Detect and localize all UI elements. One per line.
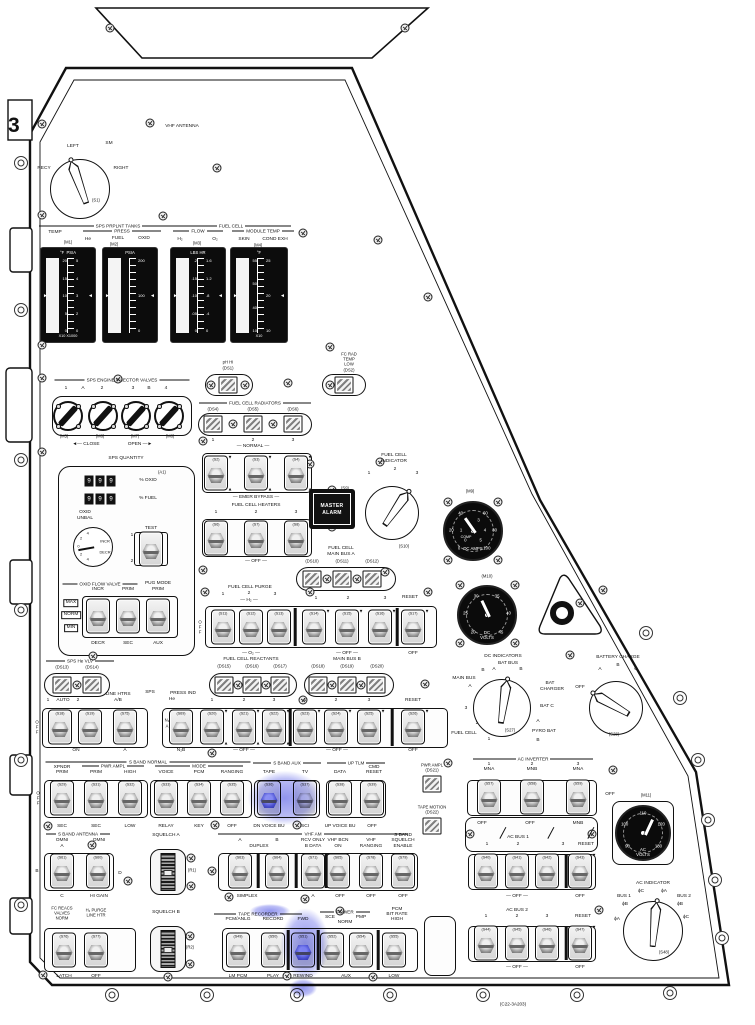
label-a: A [468, 684, 471, 690]
screw-fastener-icon [401, 24, 410, 33]
toggle-knob-icon[interactable] [230, 945, 247, 960]
label-ac-bus-2: AC BUS 2 [506, 908, 528, 914]
label-a: A [81, 386, 84, 392]
gauge-scale-title: PSIA [105, 250, 155, 257]
toggle-knob-icon[interactable] [386, 945, 403, 960]
toggle-switch-s39[interactable]: (S39) [360, 781, 384, 816]
switch-designator: (S76) [53, 934, 75, 938]
switch-designator: (S13) [268, 611, 290, 615]
gauge-number: 25 [463, 611, 468, 616]
switch-designator: (S38) [329, 782, 351, 786]
label-oxid: % OXID [139, 478, 156, 484]
toggle-knob-icon[interactable] [143, 544, 160, 559]
valve-screw-icon [56, 404, 61, 409]
toggle-knob-icon[interactable] [54, 866, 71, 881]
label-a: ϕA [614, 917, 620, 923]
injector-valve-indicator [121, 401, 151, 431]
toggle-knob-icon[interactable] [236, 722, 253, 737]
toggle-knob-icon[interactable] [509, 938, 526, 953]
toggle-switch-s47[interactable]: (S47) [568, 926, 592, 961]
injector-valve-indicator [53, 401, 83, 431]
mounting-hole-icon [14, 603, 28, 617]
switch-designator: (S60) [87, 855, 109, 859]
thumbwheel-serrations[interactable] [161, 930, 176, 968]
label-1: 1 [222, 592, 225, 598]
switch-designator: (S37) [294, 782, 316, 786]
toggle-knob-icon[interactable] [405, 722, 422, 737]
label-prim: PRIM [90, 770, 102, 776]
gauge-number: 4 [484, 527, 486, 532]
toggle-switch-s52[interactable]: (S52) [320, 933, 344, 968]
screw-fastener-icon [494, 498, 503, 507]
label-record: RECORD [263, 917, 284, 923]
gauge-left-ticks [121, 258, 129, 333]
master-alarm-button[interactable]: MASTERALARM [309, 489, 355, 529]
gauge-number: 1 [460, 527, 462, 532]
switch-designator: (S63) [229, 855, 251, 859]
label-play: PLAY [267, 974, 279, 980]
rotary-knob-icon[interactable] [622, 900, 685, 963]
gauge-number: 130 [655, 843, 662, 848]
talkback-indicator [204, 416, 223, 433]
toggle-switch-s76[interactable]: (S76) [52, 933, 76, 968]
gauge-scale-title: LBS HR [173, 250, 223, 257]
thumbwheel-serrations[interactable] [161, 853, 176, 891]
label-ds20: (DS20) [370, 665, 383, 670]
label-1: 1 [368, 471, 371, 477]
toggle-switch-s43[interactable]: (S43) [568, 854, 592, 889]
toggle-knob-icon[interactable] [271, 622, 288, 637]
toggle-knob-icon[interactable] [361, 722, 378, 737]
vhf-antenna-rotary[interactable] [50, 159, 110, 219]
label-d: D [118, 871, 121, 877]
label-b-data: B DATA [305, 844, 322, 850]
bracket-label: PWR AMPL [99, 764, 127, 769]
toggle-knob-icon[interactable] [122, 793, 139, 808]
toggle-knob-icon[interactable] [204, 722, 221, 737]
switch-designator: (S14) [303, 611, 325, 615]
switch-designator: (S23) [294, 711, 316, 715]
label-off: OFF [605, 792, 615, 798]
toggle-knob-icon[interactable] [332, 793, 349, 808]
toggle-knob-icon[interactable] [232, 866, 249, 881]
gauge-number: 20 [471, 629, 476, 634]
toggle-switch-s6[interactable]: (S6) [204, 521, 228, 556]
toggle-switch-s16[interactable]: (S16) [368, 610, 392, 645]
toggle-knob-icon[interactable] [478, 938, 495, 953]
toggle-knob-icon[interactable] [173, 722, 190, 737]
toggle-switch-s46[interactable]: (S46) [535, 926, 559, 961]
toggle-knob-icon[interactable] [324, 945, 341, 960]
label-fuel-cell-purge: FUEL CELL PURGE [228, 585, 272, 591]
toggle-knob-icon[interactable] [288, 533, 305, 548]
talkback-indicator [303, 571, 322, 588]
label-reset: RESET [366, 770, 382, 776]
toggle-switch-s17[interactable]: (S17) [401, 610, 425, 645]
label-bat: BAT [546, 681, 555, 687]
label-3: 3 [132, 386, 135, 392]
toggle-switch-s78[interactable]: (S78) [359, 854, 383, 889]
toggle-switch-s63[interactable]: (S63) [228, 854, 252, 889]
toggle-knob-icon[interactable] [306, 622, 323, 637]
toggle-switch-s60[interactable]: (S60) [86, 854, 110, 889]
label-c: ϕC [638, 889, 644, 895]
label-rewind: REWIND [293, 974, 312, 980]
toggle-knob-icon[interactable] [90, 611, 107, 626]
toggle-knob-icon[interactable] [208, 533, 225, 548]
label-mnb: MNB [527, 767, 538, 773]
toggle-knob-icon[interactable] [191, 793, 208, 808]
label-dn-voice-bu: DN VOICE BU [253, 824, 284, 830]
toggle-knob-icon[interactable] [572, 866, 589, 881]
screw-fastener-icon [456, 581, 465, 590]
label-a: A [238, 838, 241, 844]
screw-fastener-icon [201, 588, 210, 597]
switch-designator: (S32) [119, 782, 141, 786]
toggle-knob-icon[interactable] [90, 866, 107, 881]
label-s-band-aux: S BAND AUX [253, 761, 321, 766]
toggle-switch-s54[interactable]: (S54) [349, 933, 373, 968]
divider-bar [565, 854, 568, 888]
switch-designator: (S20) [201, 711, 223, 715]
toggle-switch-s18[interactable]: (S18) [48, 710, 72, 745]
toggle-knob-icon[interactable] [224, 793, 241, 808]
toggle-switch-s64[interactable]: (S64) [265, 854, 289, 889]
label-1: 1 [211, 698, 214, 704]
divider-bar [287, 930, 290, 970]
gauge-number: 0 [458, 545, 460, 550]
toggle-switch-s42[interactable]: (S42) [535, 854, 559, 889]
gauge-number: 35 [495, 593, 500, 598]
toggle-switch-s71[interactable]: (S71) [301, 854, 325, 889]
toggle-switch-119[interactable] [146, 599, 170, 634]
knob-face [381, 490, 412, 527]
toggle-switch-s34[interactable]: (S34) [187, 781, 211, 816]
toggle-switch-s58[interactable]: (S58) [520, 780, 544, 815]
toggle-knob-icon[interactable] [248, 468, 265, 483]
toggle-switch-s45[interactable]: (S45) [505, 926, 529, 961]
talkback-indicator [53, 677, 72, 694]
toggle-knob-icon[interactable] [364, 793, 381, 808]
screw-fastener-icon [38, 211, 47, 220]
label-m10: (M10) [482, 575, 493, 580]
toggle-switch-s50[interactable]: (S50) [261, 933, 285, 968]
gauge-left-ticks: 55504010 [249, 258, 257, 333]
screw-fastener-icon [199, 437, 208, 446]
label-close: ◄— CLOSE [72, 442, 99, 448]
switch-designator: (S21) [233, 711, 255, 715]
label-reset: RESET [402, 595, 418, 601]
toggle-knob-icon[interactable] [208, 468, 225, 483]
toggle-knob-icon[interactable] [353, 945, 370, 960]
toggle-knob-icon[interactable] [539, 866, 556, 881]
label-1: 1 [315, 596, 318, 602]
valve-position-bar [159, 405, 180, 427]
toggle-knob-icon[interactable] [297, 722, 314, 737]
label-high: HIGH [124, 770, 136, 776]
label-sce: SCE [325, 915, 335, 921]
toggle-knob-icon[interactable] [56, 945, 73, 960]
toggle-knob-icon[interactable] [372, 622, 389, 637]
circular-gauge: 202530354045DCVOLTS [457, 585, 517, 645]
switch-designator: (S34) [188, 782, 210, 786]
screw-fastener-icon [421, 680, 430, 689]
toggle-knob-icon[interactable] [328, 722, 345, 737]
toggle-switch-s12[interactable]: (S12) [239, 610, 263, 645]
toggle-switch-s61[interactable]: (S61) [50, 854, 74, 889]
toggle-knob-icon[interactable] [481, 792, 498, 807]
gauge-number: 60 [483, 511, 488, 516]
switch-designator: (S15) [336, 611, 358, 615]
toggle-switch-s26[interactable]: (S26) [401, 710, 425, 745]
toggle-switch-s4[interactable]: (S4) [284, 456, 308, 491]
toggle-knob-icon[interactable] [405, 622, 422, 637]
tick-label: 5 [65, 311, 67, 316]
label-on: ON [72, 748, 79, 754]
toggle-switch-s32[interactable]: (S32) [118, 781, 142, 816]
tick-label: 0 [138, 328, 152, 333]
toggle-switch-117[interactable] [86, 599, 110, 634]
toggle-switch-s31[interactable]: (S31) [84, 781, 108, 816]
label-ds2: (DS2) [344, 369, 355, 374]
down-arrow-icon: ▼ [592, 853, 597, 858]
toggle-switch-s8[interactable]: (S8) [284, 521, 308, 556]
toggle-switch-s38[interactable]: (S38) [328, 781, 352, 816]
toggle-switch-s23[interactable]: (S23) [293, 710, 317, 745]
toggle-switch-s59[interactable]: (S59) [566, 780, 590, 815]
toggle-knob-icon[interactable] [478, 866, 495, 881]
screw-fastener-icon [186, 932, 195, 941]
label-ac-bus-1: AC BUS 1 [507, 835, 529, 841]
screw-fastener-icon [73, 681, 82, 690]
toggle-knob-icon[interactable] [395, 866, 412, 881]
toggle-switch-s49[interactable]: (S49) [226, 933, 250, 968]
toggle-switch-s55[interactable]: (S55) [382, 933, 406, 968]
toggle-knob-icon[interactable] [88, 945, 105, 960]
toggle-switch-s75[interactable]: (S75) [113, 710, 137, 745]
toggle-knob-icon[interactable] [120, 611, 137, 626]
toggle-switch-s29[interactable]: (S29) [50, 781, 74, 816]
toggle-switch-s51-fwd[interactable]: (S51) [291, 933, 315, 968]
label-rcv-only: RCV ONLY [301, 838, 325, 844]
valve-screw-icon [124, 424, 129, 429]
toggle-knob-icon[interactable] [539, 938, 556, 953]
toggle-switch-s44[interactable]: (S44) [474, 926, 498, 961]
toggle-switch-s22[interactable]: (S22) [262, 710, 286, 745]
toggle-switch-s21[interactable]: (S21) [232, 710, 256, 745]
divider-bar [295, 854, 298, 888]
switch-designator: (S35) [221, 782, 243, 786]
screw-fastener-icon [444, 556, 453, 565]
toggle-knob-icon[interactable] [509, 866, 526, 881]
switch-designator: (S3) [245, 457, 267, 461]
label-h: — H₂ — [240, 598, 258, 604]
divider-bar [396, 608, 399, 646]
gauge-multiplier [105, 334, 155, 340]
battery-charge-rotary[interactable] [589, 681, 643, 735]
toggle-switch-s69[interactable]: (S69) [169, 710, 193, 745]
toggle-knob-icon[interactable] [339, 622, 356, 637]
toggle-switch-s24[interactable]: (S24) [324, 710, 348, 745]
label-ds10: (DS10) [305, 560, 318, 565]
label-off: — OFF — [245, 559, 267, 565]
toggle-knob-icon[interactable] [570, 792, 587, 807]
toggle-knob-icon[interactable] [52, 722, 69, 737]
switch-designator: (S58) [521, 781, 543, 785]
label-auto: AUTO [56, 698, 69, 704]
toggle-knob-icon[interactable] [82, 722, 99, 737]
label-temp: TEMP [48, 230, 61, 236]
bracket-label: TAPE RECORDER [236, 912, 279, 917]
screw-fastener-icon [326, 381, 335, 390]
label-a: A [123, 748, 126, 754]
toggle-switch-s37[interactable]: (S37) [293, 781, 317, 816]
label-1: 1 [215, 510, 218, 516]
squelch-b-thumbwheel[interactable] [150, 926, 186, 972]
mounting-hole-icon [383, 988, 397, 1002]
panel-hole [550, 601, 574, 625]
label-charger: CHARGER [540, 687, 564, 693]
screw-fastener-icon [208, 749, 217, 758]
dc-indicators-rotary[interactable] [473, 679, 531, 737]
mounting-hole-icon [715, 931, 729, 945]
bracket-label: FLOW [189, 229, 206, 234]
gauge-number: 4 [87, 530, 89, 535]
toggle-switch-s20[interactable]: (S20) [200, 710, 224, 745]
digit-window: 9 [96, 494, 105, 505]
toggle-switch-118[interactable] [116, 599, 140, 634]
toggle-knob-icon[interactable] [266, 722, 283, 737]
label-norm: NORM [338, 920, 353, 926]
toggle-switch-s57[interactable]: (S57) [477, 780, 501, 815]
label-a: A [166, 725, 169, 730]
toggle-switch-107[interactable] [139, 532, 163, 567]
screw-fastener-icon [186, 960, 195, 969]
toggle-switch-s35[interactable]: (S35) [220, 781, 244, 816]
toggle-knob-icon[interactable] [330, 866, 347, 881]
toggle-knob-icon[interactable] [248, 533, 265, 548]
toggle-knob-icon[interactable] [305, 866, 322, 881]
label-ds11: (DS11) [336, 560, 349, 565]
toggle-knob-icon[interactable] [158, 793, 175, 808]
rotary-knob-icon[interactable] [470, 676, 533, 739]
toggle-knob-icon[interactable] [269, 866, 286, 881]
tick-label: 10 [266, 328, 280, 333]
toggle-knob-icon[interactable] [215, 622, 232, 637]
toggle-switch-s65[interactable]: (S65) [326, 854, 350, 889]
talkback-indicator [363, 571, 382, 588]
toggle-switch-s3[interactable]: (S3) [244, 456, 268, 491]
label-2: 2 [252, 438, 255, 444]
toggle-switch-s40[interactable]: (S40) [474, 854, 498, 889]
toggle-knob-icon[interactable] [297, 793, 314, 808]
mounting-hole-icon [570, 988, 584, 1002]
label-max: MAX [63, 599, 78, 607]
bracket-label: PRESS [112, 229, 132, 234]
ac-indicator-rotary[interactable] [623, 901, 683, 961]
toggle-knob-icon[interactable] [265, 945, 282, 960]
label-ds1: (DS1) [223, 367, 234, 372]
toggle-switch-s13[interactable]: (S13) [267, 610, 291, 645]
toggle-knob-icon[interactable] [288, 468, 305, 483]
talkback-indicator [219, 377, 238, 394]
label-he: He [85, 237, 91, 243]
master-alarm-text: ALARM [322, 510, 342, 516]
label-2: 2 [77, 698, 80, 704]
top-edge-strip [96, 8, 428, 58]
toggle-switch-s79[interactable]: (S79) [391, 854, 415, 889]
valve-screw-icon [111, 404, 116, 409]
switch-designator: (S12) [240, 611, 262, 615]
bracket-label: FUEL CELL RADIATORS [227, 401, 283, 406]
mounting-hole-icon [701, 813, 715, 827]
toggle-knob-icon[interactable] [88, 793, 105, 808]
label-vhf-am: VHF AM [218, 832, 408, 837]
label-3: 3 [384, 596, 387, 602]
toggle-switch-s36-tape[interactable]: (S36) [257, 781, 281, 816]
label-sm: SM [105, 141, 112, 147]
toggle-knob-icon[interactable] [261, 793, 278, 808]
label-s28: (S28) [609, 733, 619, 738]
toggle-switch-s14[interactable]: (S14) [302, 610, 326, 645]
screw-fastener-icon [494, 556, 503, 565]
switch-designator: (S71) [302, 855, 324, 859]
valve-screw-icon [91, 404, 96, 409]
toggle-knob-icon[interactable] [524, 792, 541, 807]
switch-designator: (S77) [85, 934, 107, 938]
toggle-knob-icon[interactable] [295, 945, 312, 960]
toggle-switch-s15[interactable]: (S15) [335, 610, 359, 645]
toggle-switch-s19[interactable]: (S19) [78, 710, 102, 745]
label-1: 1 [488, 737, 491, 743]
valve-screw-icon [56, 424, 61, 429]
toggle-knob-icon[interactable] [363, 866, 380, 881]
toggle-knob-icon[interactable] [54, 793, 71, 808]
label-lm-pcm: LM PCM [229, 974, 248, 980]
switch-designator: (S51) [292, 934, 314, 938]
fuel-cell-indicator-rotary[interactable] [365, 486, 419, 540]
vertical-gauge: °F55504010252010►◄X10 [230, 247, 288, 343]
toggle-knob-icon[interactable] [572, 938, 589, 953]
gauge-number: 100 [483, 545, 490, 550]
screw-fastener-icon [444, 498, 453, 507]
switch-designator: (S25) [358, 711, 380, 715]
squelch-a-thumbwheel[interactable] [150, 849, 186, 895]
toggle-knob-icon[interactable] [117, 722, 134, 737]
label-b: B [481, 668, 484, 674]
toggle-knob-icon[interactable] [243, 622, 260, 637]
toggle-switch-s7[interactable]: (S7) [244, 521, 268, 556]
toggle-knob-icon[interactable] [150, 611, 167, 626]
digit-window: 9 [107, 494, 116, 505]
switch-designator: (S6) [205, 522, 227, 526]
toggle-switch-s2[interactable]: (S2) [204, 456, 228, 491]
divider-bar [257, 854, 260, 888]
toggle-switch-s25[interactable]: (S25) [357, 710, 381, 745]
toggle-switch-s33[interactable]: (S33) [154, 781, 178, 816]
toggle-switch-s41[interactable]: (S41) [505, 854, 529, 889]
tick-label: 0 [206, 328, 220, 333]
label-vhf-antenna: VHF ANTENNA [165, 124, 199, 130]
toggle-switch-s77[interactable]: (S77) [84, 933, 108, 968]
down-arrow-icon: ▼ [425, 709, 430, 714]
gauge-scale-ticks [67, 258, 74, 333]
label-duplex: DUPLEX [249, 844, 268, 850]
label-ds16: (DS16) [245, 665, 258, 670]
toggle-switch-s11[interactable]: (S11) [211, 610, 235, 645]
label-high: HIGH [391, 917, 403, 923]
screw-fastener-icon [44, 822, 53, 831]
